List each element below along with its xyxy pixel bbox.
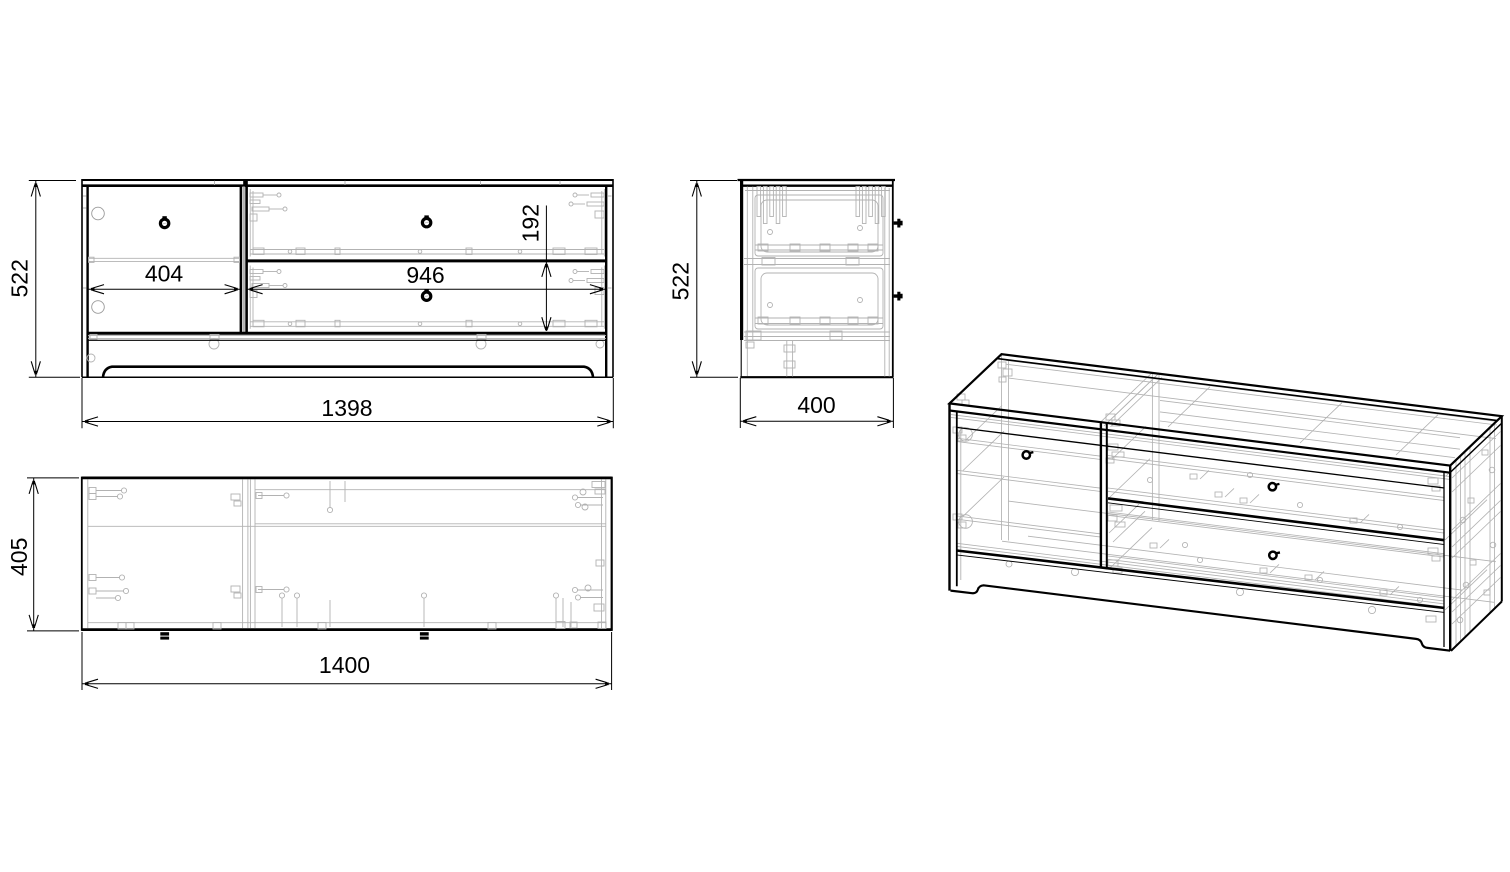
svg-text:405: 405 [6,538,32,576]
svg-text:404: 404 [145,261,184,287]
svg-text:400: 400 [797,392,835,418]
svg-text:946: 946 [406,262,444,288]
svg-text:192: 192 [517,204,543,242]
svg-text:1400: 1400 [319,652,370,678]
svg-text:522: 522 [668,262,694,300]
svg-text:1398: 1398 [321,395,372,421]
svg-text:522: 522 [6,259,32,297]
